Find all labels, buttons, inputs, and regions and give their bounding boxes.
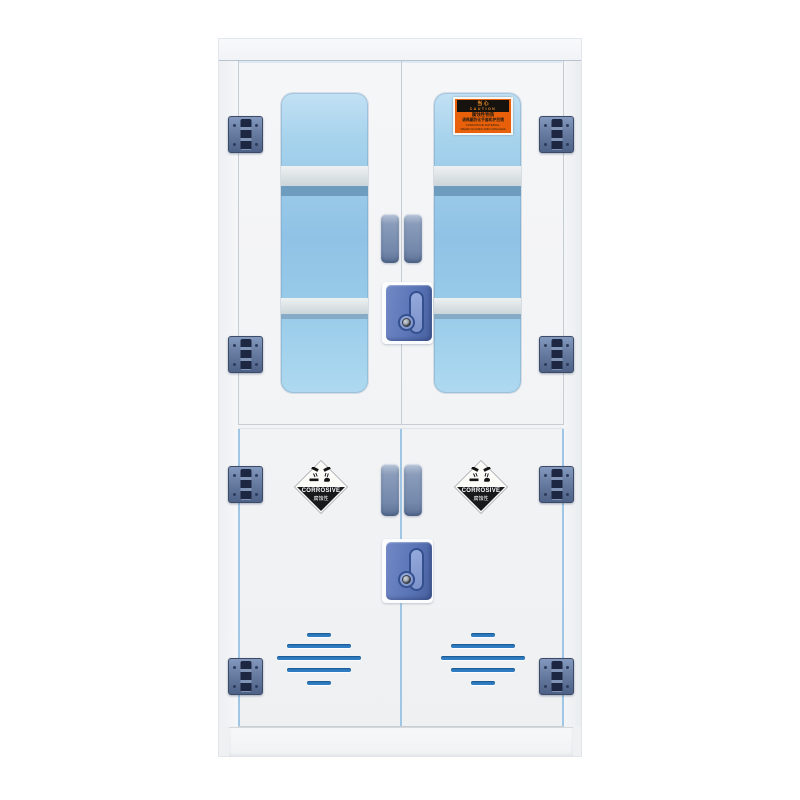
keyhole-icon [402,318,411,327]
door-hinge [539,658,574,695]
hinge-pin [551,339,562,370]
hinge-pin [551,469,562,500]
vent-slot [287,644,351,648]
section-divider [238,424,564,425]
lower-left-door-handle [381,464,399,516]
hinge-pin [240,661,251,692]
safety-cabinet: 当 心 CAUTION 腐蚀性物质 请佩戴防化手套和护目镜 CORROSIVE … [218,38,582,757]
hinge-pin [551,119,562,150]
caution-label-header: 当 心 CAUTION [457,100,509,112]
upper-right-door-window: 当 心 CAUTION 腐蚀性物质 请佩戴防化手套和护目镜 CORROSIVE … [434,93,521,393]
caution-title-en: CAUTION [457,107,509,111]
vent-slot [307,681,331,685]
cabinet-left-side [219,61,238,726]
corrosive-hazard-label: CORROSIVE 腐蚀性 [454,460,508,514]
vent-slot [441,656,525,660]
shelf-shadow [281,186,368,196]
shelf-edge [434,166,521,186]
vent-slot [451,668,515,672]
vent-slot [307,633,331,637]
door-hinge [228,466,263,503]
vent-slot [277,656,361,660]
cabinet-base [229,727,573,757]
corrosive-text-cn: 腐蚀性 [454,496,508,502]
product-photo: 当 心 CAUTION 腐蚀性物质 请佩戴防化手套和护目镜 CORROSIVE … [0,0,800,800]
vent-slot [471,633,495,637]
corrosive-pictogram-icon [466,467,496,484]
shelf-edge [281,298,368,314]
shelf-shadow [281,314,368,319]
door-hinge [228,116,263,153]
corrosive-text-en: CORROSIVE [454,488,508,495]
door-hinge [539,336,574,373]
corrosive-hazard-label: CORROSIVE 腐蚀性 [294,460,348,514]
corrosive-text-cn: 腐蚀性 [294,496,348,502]
shelf-edge [434,298,521,314]
upper-center-door-seam [401,61,402,424]
cabinet-top-rail [219,39,581,61]
shelf-shadow [434,186,521,196]
corrosive-text-en: CORROSIVE [294,488,348,495]
vent-slot [471,681,495,685]
vent-slot [287,668,351,672]
hinge-pin [240,469,251,500]
caution-label: 当 心 CAUTION 腐蚀性物质 请佩戴防化手套和护目镜 CORROSIVE … [453,97,513,135]
corrosive-pictogram-icon [306,467,336,484]
door-hinge [228,336,263,373]
hinge-pin [551,661,562,692]
upper-right-door-handle [404,214,422,263]
lower-door-lock [386,542,432,600]
hinge-pin [240,119,251,150]
upper-left-door-window [281,93,368,393]
lower-right-door-handle [404,464,422,516]
keyhole-icon [402,575,411,584]
door-hinge [539,116,574,153]
hinge-pin [240,339,251,370]
upper-left-door-handle [381,214,399,263]
upper-door-lock [386,285,432,341]
shelf-shadow [434,314,521,319]
vent-slot [451,644,515,648]
cabinet-right-side [562,61,581,726]
door-hinge [539,466,574,503]
door-hinge [228,658,263,695]
shelf-edge [281,166,368,186]
caution-line4: WEAR GLOVES AND GOGGLES [460,127,505,131]
